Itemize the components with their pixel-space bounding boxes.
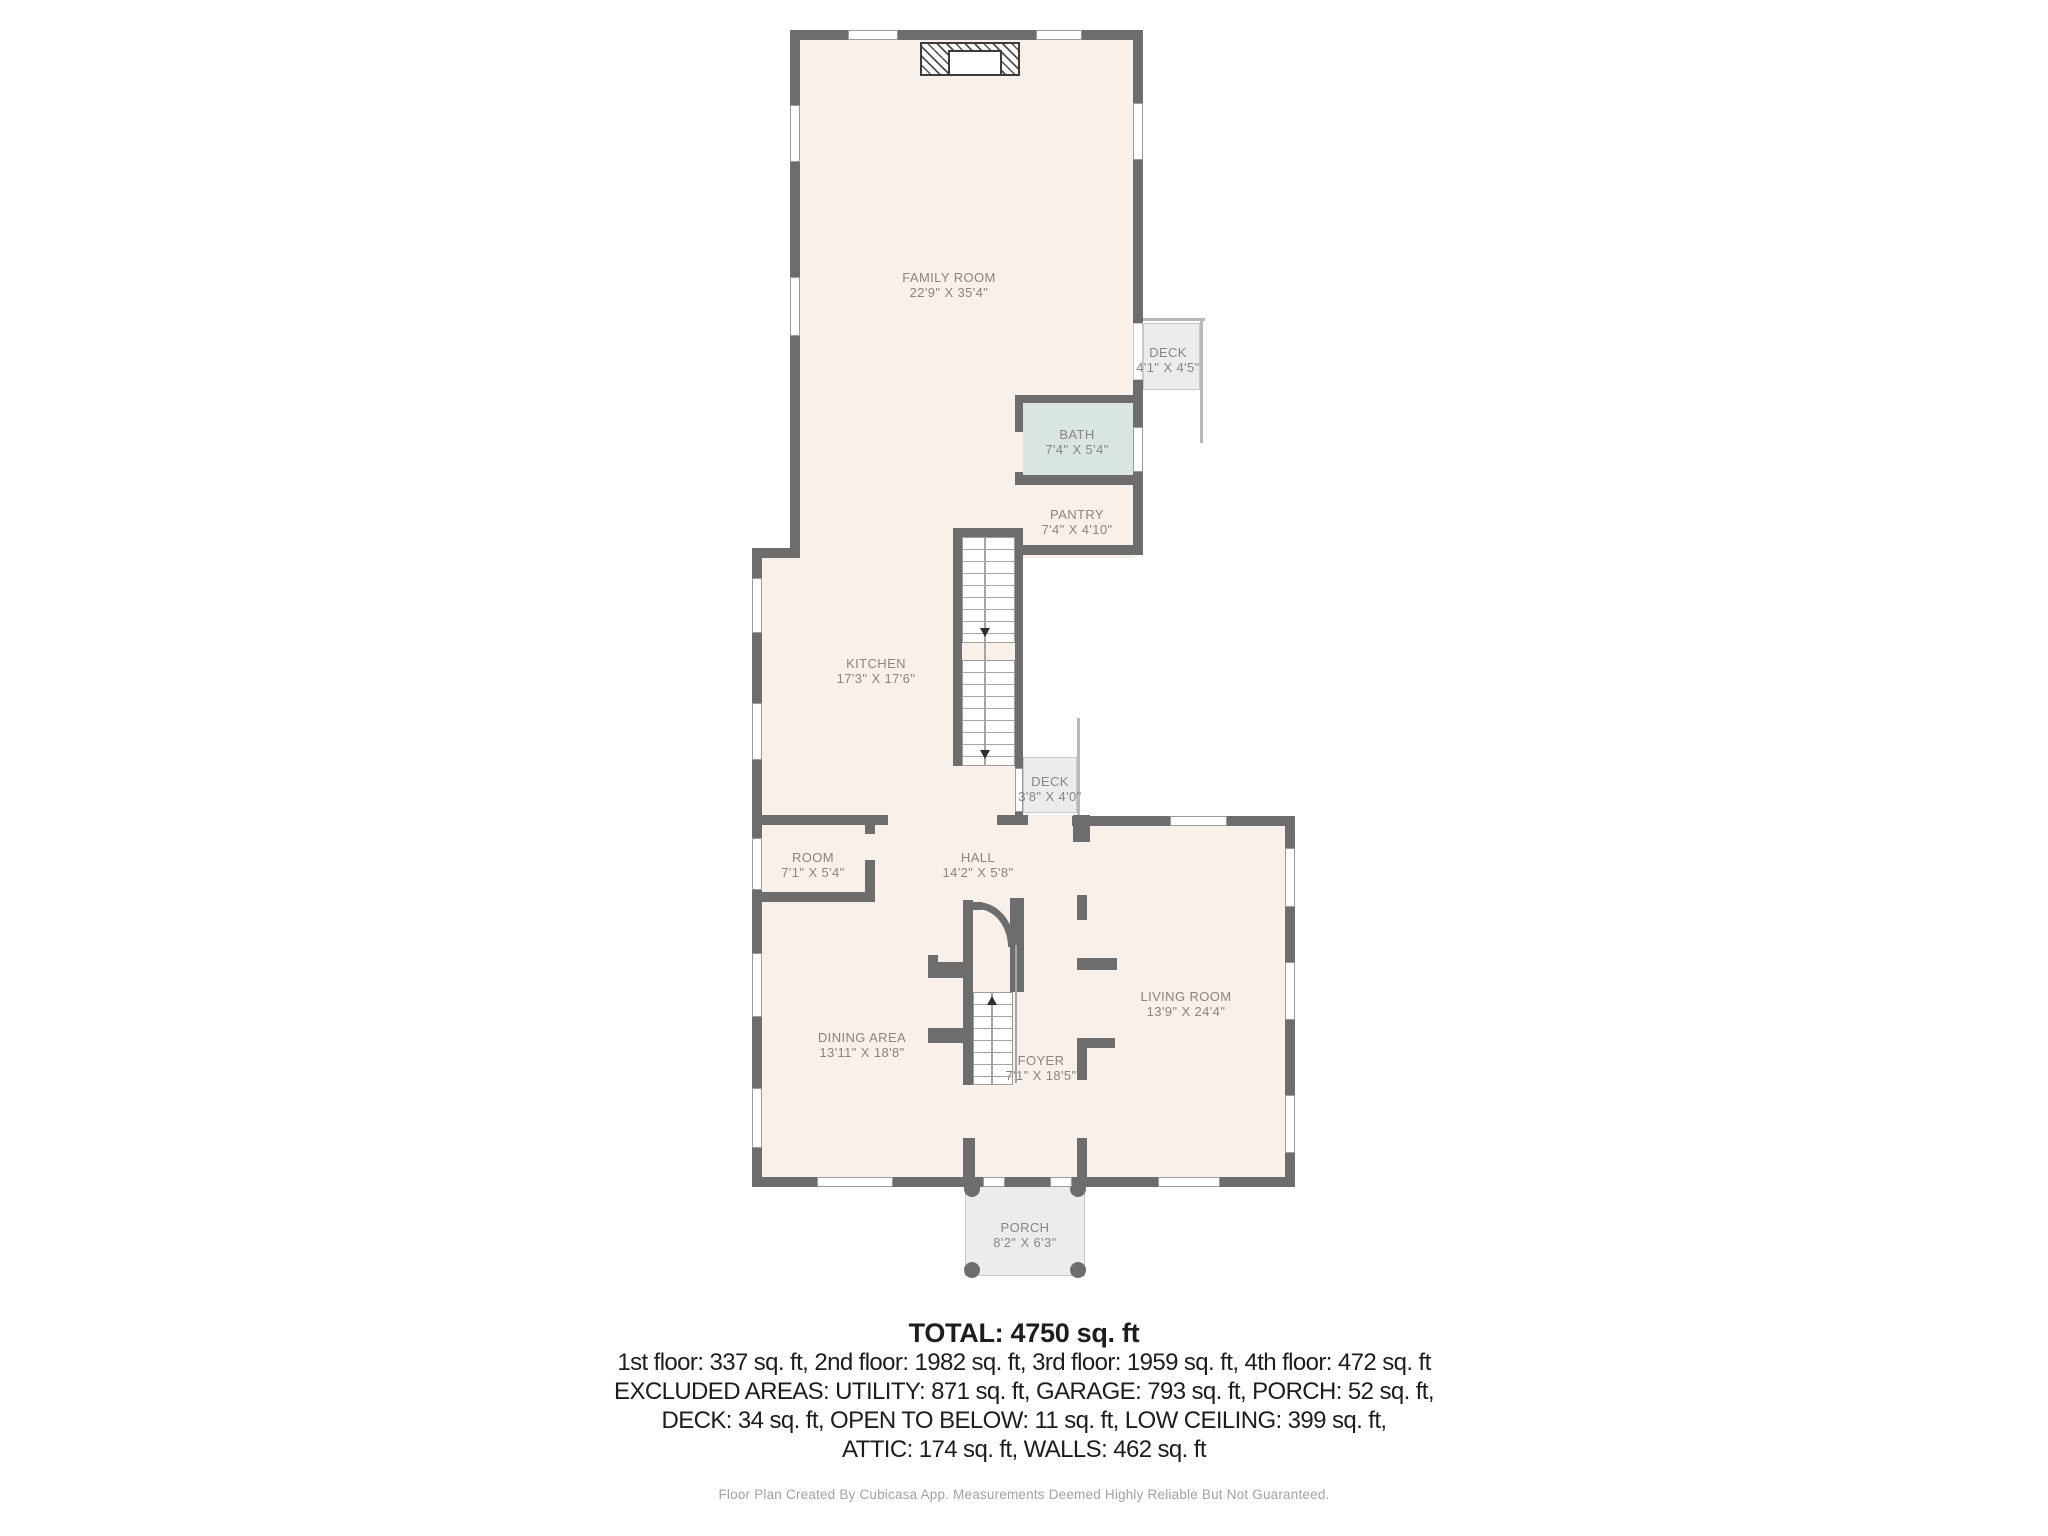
room-label-deck-lower: DECK 3'8" X 4'0" bbox=[1018, 775, 1081, 804]
dining-foyer-floor bbox=[762, 902, 1077, 1177]
room-name: FOYER bbox=[1005, 1054, 1076, 1069]
room-dims: 8'2" X 6'3" bbox=[993, 1236, 1056, 1251]
room-label-porch: PORCH 8'2" X 6'3" bbox=[993, 1221, 1056, 1250]
room-name: BATH bbox=[1045, 428, 1108, 443]
room-name: DECK bbox=[1018, 775, 1081, 790]
wall-segment bbox=[928, 1028, 968, 1043]
wall-segment bbox=[865, 818, 875, 834]
wall-segment bbox=[997, 815, 1028, 825]
stair-center-line bbox=[984, 537, 986, 766]
room-name: HALL bbox=[942, 851, 1013, 866]
room-dims: 4'1" X 4'5" bbox=[1136, 361, 1199, 376]
wall-segment bbox=[936, 962, 964, 978]
wall-segment bbox=[1077, 1138, 1087, 1187]
wall-segment bbox=[963, 1138, 975, 1187]
window bbox=[1158, 1177, 1220, 1187]
deck-upper-railing bbox=[1143, 318, 1205, 321]
window bbox=[752, 838, 762, 890]
room-label-bath: BATH 7'4" X 5'4" bbox=[1045, 428, 1108, 457]
total-area-text: TOTAL: 4750 sq. ft bbox=[0, 1318, 2048, 1348]
wall-segment bbox=[1023, 475, 1133, 485]
room-dims: 7'4" X 4'10" bbox=[1041, 523, 1112, 538]
room-name: PORCH bbox=[993, 1221, 1056, 1236]
wall-segment bbox=[1015, 528, 1023, 766]
excluded-areas-text: DECK: 34 sq. ft, OPEN TO BELOW: 11 sq. f… bbox=[0, 1406, 2048, 1435]
window bbox=[790, 277, 800, 336]
room-label-pantry: PANTRY 7'4" X 4'10" bbox=[1041, 508, 1112, 537]
window bbox=[1133, 427, 1143, 472]
room-name: DINING AREA bbox=[818, 1031, 906, 1046]
floor-areas-text: 1st floor: 337 sq. ft, 2nd floor: 1982 s… bbox=[0, 1348, 2048, 1377]
stair-down-arrow bbox=[980, 750, 990, 759]
room-dims: 22'9" X 35'4" bbox=[902, 286, 996, 301]
window bbox=[790, 105, 800, 162]
porch-post bbox=[964, 1262, 980, 1278]
room-name: PANTRY bbox=[1041, 508, 1112, 523]
wall-segment bbox=[1015, 545, 1143, 555]
room-label-kitchen: KITCHEN 17'3" X 17'6" bbox=[837, 657, 916, 686]
room-dims: 14'2" X 5'8" bbox=[942, 866, 1013, 881]
window bbox=[1050, 1177, 1072, 1187]
window bbox=[1285, 962, 1295, 1020]
room-label-foyer: FOYER 7'1" X 18'5" bbox=[1005, 1054, 1076, 1083]
wall-segment bbox=[953, 528, 1023, 537]
wall-segment bbox=[1015, 395, 1133, 403]
wall-segment bbox=[1077, 958, 1117, 970]
room-name: ROOM bbox=[781, 851, 844, 866]
room-label-living-room: LIVING ROOM 13'9" X 24'4" bbox=[1140, 990, 1231, 1019]
stair-up-arrow bbox=[987, 996, 997, 1005]
wall-segment bbox=[752, 892, 875, 902]
wall-segment bbox=[1077, 895, 1087, 920]
window bbox=[1133, 103, 1143, 160]
wall-segment bbox=[865, 860, 875, 892]
wall-segment bbox=[963, 900, 973, 1085]
window bbox=[1285, 848, 1295, 907]
room-label-room: ROOM 7'1" X 5'4" bbox=[781, 851, 844, 880]
room-label-family-room: FAMILY ROOM 22'9" X 35'4" bbox=[902, 271, 996, 300]
excluded-areas-text: ATTIC: 174 sq. ft, WALLS: 462 sq. ft bbox=[0, 1435, 2048, 1464]
room-name: LIVING ROOM bbox=[1140, 990, 1231, 1005]
room-name: FAMILY ROOM bbox=[902, 271, 996, 286]
room-label-dining-area: DINING AREA 13'11" X 18'8" bbox=[818, 1031, 906, 1060]
room-label-hall: HALL 14'2" X 5'8" bbox=[942, 851, 1013, 880]
window bbox=[983, 1177, 1005, 1187]
room-name: KITCHEN bbox=[837, 657, 916, 672]
floor-plan-page: FAMILY ROOM 22'9" X 35'4" DECK 4'1" X 4'… bbox=[0, 0, 2048, 1536]
wall-segment bbox=[1015, 395, 1023, 432]
stair-center-line bbox=[991, 992, 993, 1085]
wall-segment bbox=[953, 528, 962, 766]
wall-segment bbox=[790, 30, 1143, 40]
stair-down-arrow bbox=[980, 628, 990, 637]
room-dims: 13'9" X 24'4" bbox=[1140, 1005, 1231, 1020]
window bbox=[752, 1088, 762, 1148]
window bbox=[752, 953, 762, 1017]
room-dims: 7'1" X 5'4" bbox=[781, 866, 844, 881]
deck-upper-railing bbox=[1200, 318, 1203, 443]
area-summary: TOTAL: 4750 sq. ft 1st floor: 337 sq. ft… bbox=[0, 1318, 2048, 1464]
room-dims: 3'8" X 4'0" bbox=[1018, 790, 1081, 805]
window bbox=[1036, 30, 1082, 40]
room-dims: 17'3" X 17'6" bbox=[837, 672, 916, 687]
fireplace-firebox bbox=[948, 50, 1002, 76]
window bbox=[848, 30, 898, 40]
window bbox=[752, 578, 762, 633]
room-dims: 13'11" X 18'8" bbox=[818, 1046, 906, 1061]
room-dims: 7'1" X 18'5" bbox=[1005, 1069, 1076, 1084]
window bbox=[1285, 1095, 1295, 1153]
window bbox=[817, 1177, 893, 1187]
excluded-areas-text: EXCLUDED AREAS: UTILITY: 871 sq. ft, GAR… bbox=[0, 1377, 2048, 1406]
wall-segment bbox=[1073, 815, 1090, 842]
window bbox=[752, 703, 762, 760]
window bbox=[1170, 816, 1227, 826]
porch-post bbox=[1070, 1262, 1086, 1278]
wall-segment bbox=[1015, 472, 1023, 485]
app-credit-text: Floor Plan Created By Cubicasa App. Meas… bbox=[0, 1487, 2048, 1502]
wall-segment bbox=[1077, 1038, 1087, 1080]
room-label-deck-upper: DECK 4'1" X 4'5" bbox=[1136, 346, 1199, 375]
room-name: DECK bbox=[1136, 346, 1199, 361]
room-dims: 7'4" X 5'4" bbox=[1045, 443, 1108, 458]
